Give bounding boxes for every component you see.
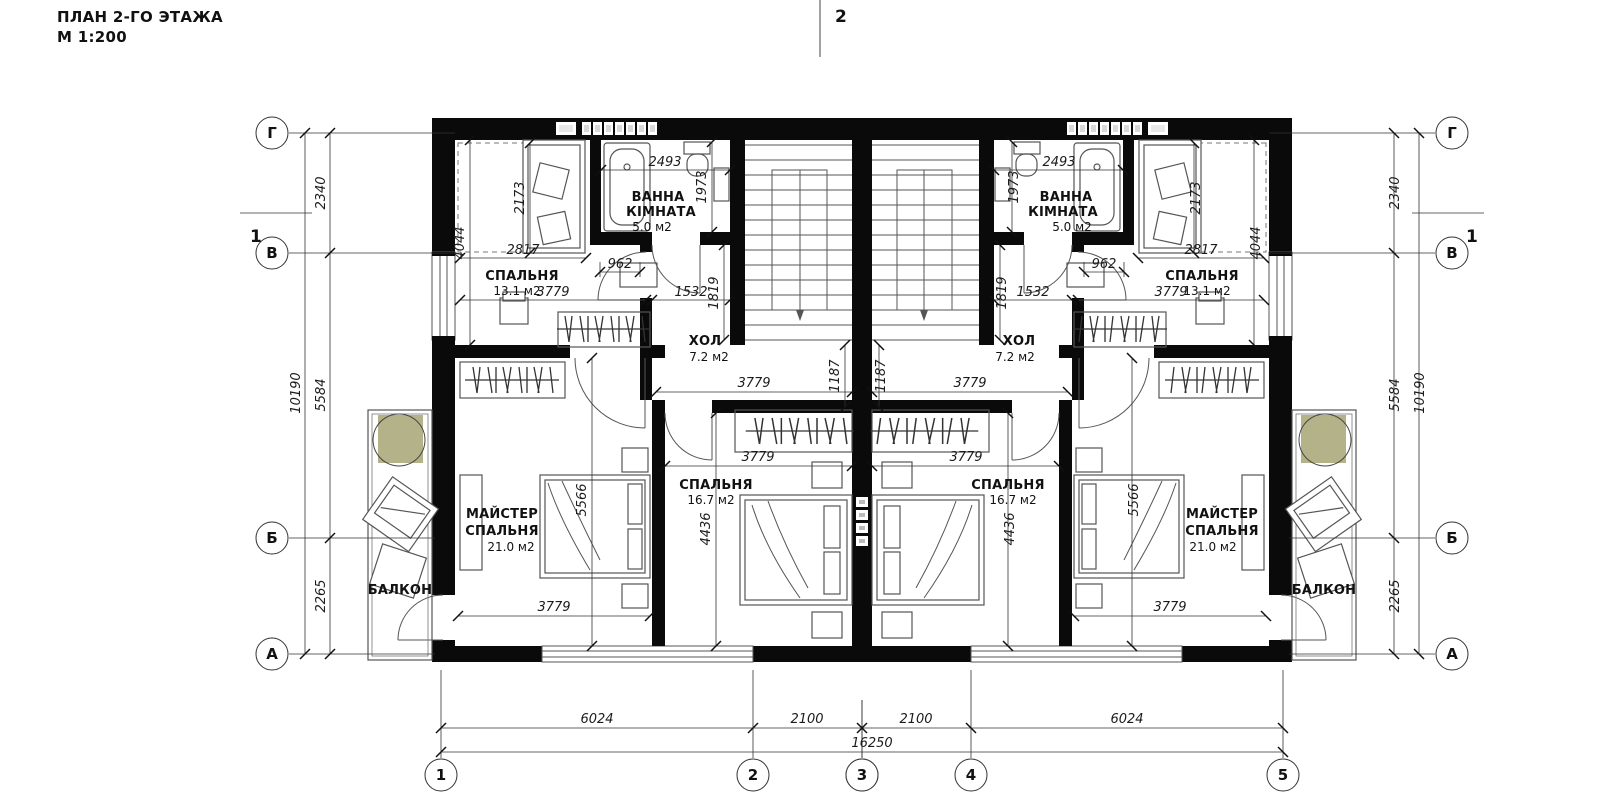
- room-bathroom-right-area: 5.0 м2: [1052, 220, 1092, 234]
- dim-5584-right: 5584: [1388, 378, 1403, 411]
- dim-2265-left: 2265: [314, 579, 329, 612]
- dim-1532-left: 1532: [674, 285, 707, 300]
- axis-col-5: 5: [1278, 766, 1288, 784]
- unit-left-geometry: [240, 117, 878, 791]
- dim-3779-bedroom-small-right: 3779: [1154, 285, 1187, 300]
- axis-row-b-right: Б: [1446, 529, 1457, 547]
- dim-3779-hall-left: 3779: [737, 376, 770, 391]
- room-bedroom-small-left-area: 13.1 м2: [493, 284, 540, 298]
- axis-row-v-right: В: [1446, 244, 1457, 262]
- dim-2817-right: 2817: [1184, 243, 1218, 258]
- dim-4044-right: 4044: [1249, 226, 1264, 259]
- room-bedroom-small-left-name: СПАЛЬНЯ: [485, 269, 558, 284]
- dim-2100-right: 2100: [899, 712, 932, 727]
- dim-3779-bedroom-mid-right: 3779: [949, 450, 982, 465]
- dim-3779-hall-right: 3779: [953, 376, 986, 391]
- room-master-right-area: 21.0 м2: [1189, 540, 1236, 554]
- room-hall-right-area: 7.2 м2: [995, 350, 1035, 364]
- dim-2265-right: 2265: [1388, 579, 1403, 612]
- page-title: ПЛАН 2-ГО ЭТАЖА: [57, 8, 223, 26]
- floor-plan-drawing: ПЛАН 2-ГО ЭТАЖА М 1:200 2 1 1 Г В Б А Г …: [0, 0, 1615, 800]
- dim-6024-left: 6024: [580, 712, 613, 727]
- room-master-right-name2: СПАЛЬНЯ: [1185, 524, 1258, 539]
- dim-5566-right: 5566: [1127, 483, 1142, 516]
- room-bedroom-mid-left-area: 16.7 м2: [687, 493, 734, 507]
- dim-5584-left: 5584: [314, 378, 329, 411]
- dim-2173-right: 2173: [1189, 181, 1204, 214]
- dim-3779-bedroom-mid-left: 3779: [741, 450, 774, 465]
- dim-4044-left: 4044: [453, 226, 468, 259]
- room-bathroom-right-name1: ВАННА: [1040, 190, 1093, 205]
- page-scale: М 1:200: [57, 28, 127, 46]
- axis-col-4: 4: [966, 766, 976, 784]
- axis-row-a-right: А: [1446, 645, 1458, 663]
- room-bathroom-left-name1: ВАННА: [632, 190, 685, 205]
- room-bedroom-mid-left-name: СПАЛЬНЯ: [679, 478, 752, 493]
- room-bathroom-left-area: 5.0 м2: [632, 220, 672, 234]
- axis-col-1: 1: [436, 766, 446, 784]
- room-balcony-left-name: БАЛКОН: [368, 583, 433, 598]
- axis-row-g-left: Г: [267, 124, 277, 142]
- room-bathroom-right-name2: КІМНАТА: [1028, 205, 1098, 220]
- section-marker-right: 1: [1466, 227, 1478, 247]
- dim-2817-left: 2817: [506, 243, 540, 258]
- dim-962-left: 962: [608, 257, 633, 272]
- dim-10190-right: 10190: [1413, 372, 1428, 413]
- room-bedroom-mid-right-area: 16.7 м2: [989, 493, 1036, 507]
- dim-1187-left: 1187: [828, 359, 843, 393]
- room-master-left-area: 21.0 м2: [487, 540, 534, 554]
- section-marker-left: 1: [250, 227, 262, 247]
- dim-6024-right: 6024: [1110, 712, 1143, 727]
- dim-3779-bedroom-small-left: 3779: [536, 285, 569, 300]
- axis-col-3: 3: [857, 766, 867, 784]
- floor-plan-page: ПЛАН 2-ГО ЭТАЖА М 1:200 2 1 1 Г В Б А Г …: [0, 0, 1615, 800]
- dim-1973-right: 1973: [1007, 170, 1022, 203]
- axis-row-v-left: В: [266, 244, 277, 262]
- unit-right-geometry: [846, 117, 1484, 791]
- dim-5566-left: 5566: [575, 483, 590, 516]
- dim-4436-left: 4436: [699, 512, 714, 545]
- room-bathroom-left-name2: КІМНАТА: [626, 205, 696, 220]
- dim-2340-left: 2340: [314, 176, 329, 209]
- axis-row-g-right: Г: [1447, 124, 1457, 142]
- dim-3779-master-right: 3779: [1153, 600, 1186, 615]
- dim-2493-left: 2493: [648, 155, 681, 170]
- dim-2340-right: 2340: [1388, 176, 1403, 209]
- room-master-left-name2: СПАЛЬНЯ: [465, 524, 538, 539]
- room-master-right-name1: МАЙСТЕР: [1186, 506, 1258, 522]
- dim-3779-master-left: 3779: [537, 600, 570, 615]
- dim-4436-right: 4436: [1003, 512, 1018, 545]
- room-bedroom-small-right-name: СПАЛЬНЯ: [1165, 269, 1238, 284]
- room-master-left-name1: МАЙСТЕР: [466, 506, 538, 522]
- axis-col-2: 2: [748, 766, 758, 784]
- dim-16250-total: 16250: [851, 736, 892, 751]
- dim-1819-right: 1819: [995, 276, 1010, 309]
- room-balcony-right-name: БАЛКОН: [1292, 583, 1357, 598]
- room-hall-left-name: ХОЛ: [689, 334, 721, 349]
- room-bedroom-small-right-area: 13.1 м2: [1183, 284, 1230, 298]
- dim-1819-left: 1819: [707, 276, 722, 309]
- section-marker-top: 2: [835, 7, 847, 27]
- dim-10190-left: 10190: [289, 372, 304, 413]
- dim-962-right: 962: [1092, 257, 1117, 272]
- dim-2173-left: 2173: [513, 181, 528, 214]
- room-hall-right-name: ХОЛ: [1003, 334, 1035, 349]
- dim-1187-right: 1187: [874, 359, 889, 393]
- dim-1532-right: 1532: [1016, 285, 1049, 300]
- dim-2100-left: 2100: [790, 712, 823, 727]
- dim-2493-right: 2493: [1042, 155, 1075, 170]
- room-hall-left-area: 7.2 м2: [689, 350, 729, 364]
- dim-1973-left: 1973: [695, 170, 710, 203]
- axis-row-a-left: А: [266, 645, 278, 663]
- axis-row-b-left: Б: [266, 529, 277, 547]
- room-bedroom-mid-right-name: СПАЛЬНЯ: [971, 478, 1044, 493]
